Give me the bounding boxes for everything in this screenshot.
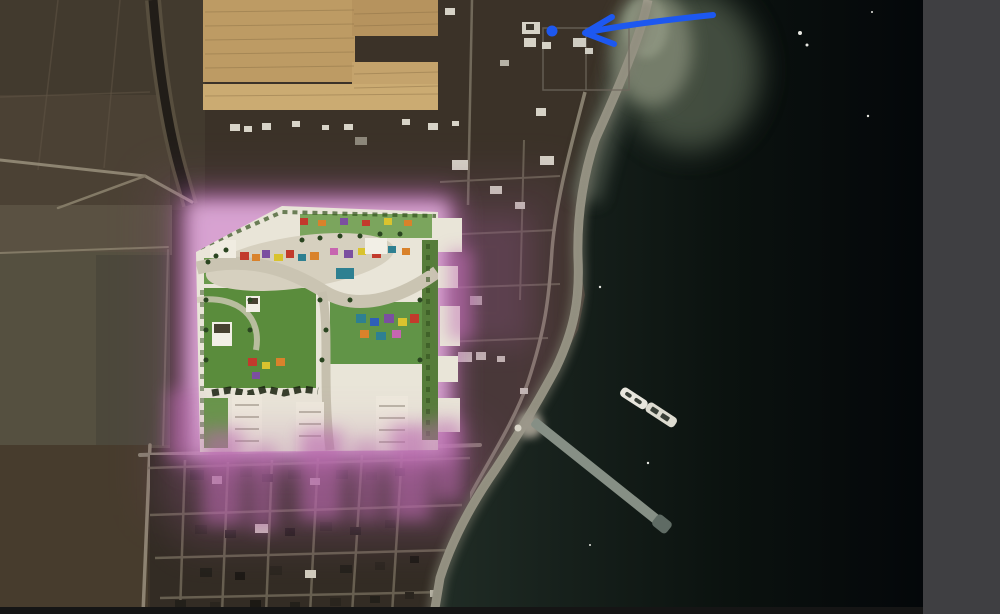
bottom-bar bbox=[0, 607, 923, 614]
pier-root-building bbox=[515, 425, 522, 432]
annotation-marker-dot bbox=[547, 26, 558, 37]
map-canvas[interactable] bbox=[0, 0, 923, 614]
video-frame bbox=[0, 0, 1000, 614]
site-plan-overlay bbox=[196, 206, 462, 460]
app-side-panel bbox=[923, 0, 1000, 614]
